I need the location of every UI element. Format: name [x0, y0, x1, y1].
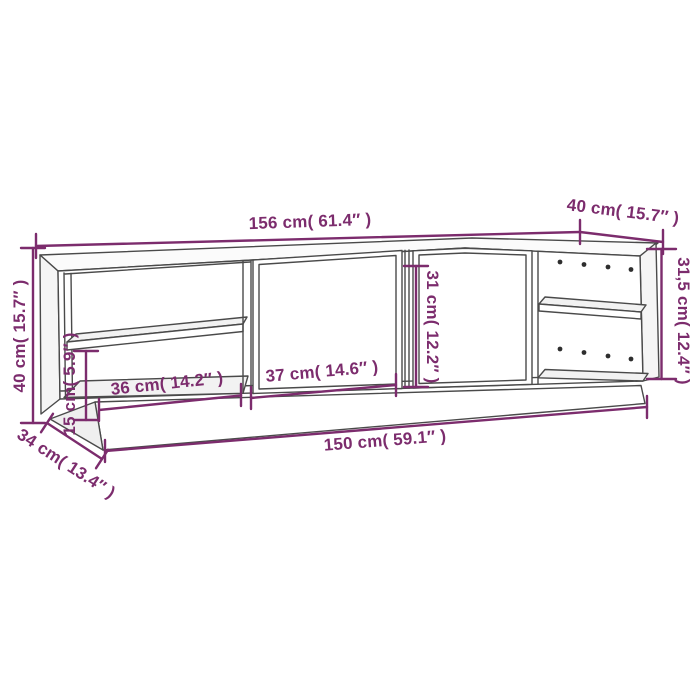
dimension-label-left-clearance: 15 cm( 5.9″ ): [60, 332, 80, 435]
dimension-label-top-width: 156 cm( 61.4″ ): [248, 210, 371, 234]
cabinet-left-side: [40, 255, 60, 414]
dimension-label-right-height: 31,5 cm( 12.4″ ): [673, 257, 693, 385]
dimension-label-door-height: 31 cm( 12.2″ ): [422, 270, 442, 383]
furniture-drawing: [0, 0, 700, 700]
dimension-diagram: 156 cm( 61.4″ ) 40 cm( 15.7″ ) 31,5 cm( …: [0, 0, 700, 700]
dimension-label-left-height: 40 cm( 15.7″ ): [10, 279, 30, 392]
